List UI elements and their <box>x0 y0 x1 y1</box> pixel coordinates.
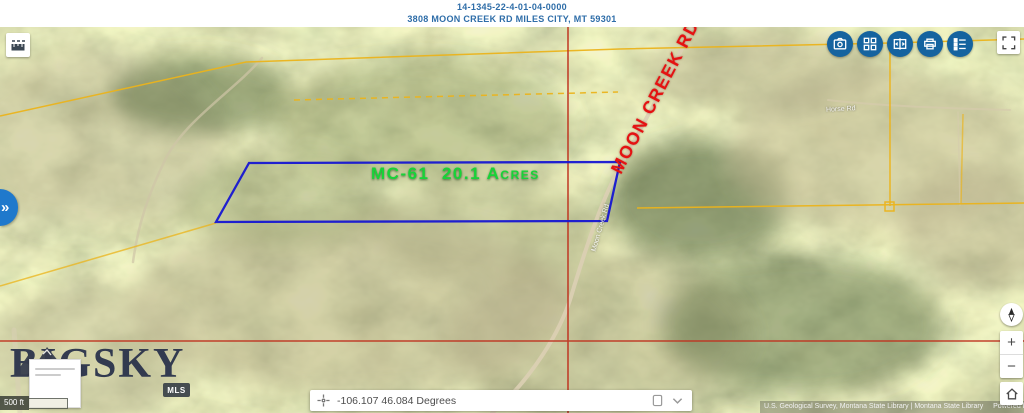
chevron-right-icon: » <box>1 199 7 216</box>
property-address: 3808 MOON CREEK RD MILES CITY, MT 59301 <box>407 14 616 25</box>
map-attribution: U.S. Geological Survey, Montana State Li… <box>760 401 1024 413</box>
measure-tool-button[interactable] <box>6 33 30 57</box>
parcel-number: 14-1345-22-4-01-04-0000 <box>457 2 567 13</box>
layers-grid-button[interactable] <box>857 31 883 57</box>
ruler-icon <box>7 34 29 56</box>
print-button[interactable] <box>917 31 943 57</box>
map-application: MC-61 20.1 Acres MOON CREEK RD Moon Cree… <box>0 0 1024 413</box>
print-icon <box>923 37 937 51</box>
scale-bar: 500 ft <box>0 396 68 410</box>
fullscreen-button[interactable] <box>997 31 1020 54</box>
legend-icon <box>953 37 967 51</box>
camera-icon <box>833 37 847 51</box>
fullscreen-expand-icon <box>1001 35 1016 50</box>
compass-button[interactable] <box>1000 303 1023 326</box>
chevron-down-icon[interactable] <box>672 397 683 405</box>
crosshair-icon[interactable] <box>317 394 330 407</box>
scale-bar-segment <box>29 398 68 409</box>
apps-grid-icon <box>863 37 877 51</box>
zoom-out-button[interactable]: − <box>1000 355 1023 378</box>
attribution-sources: U.S. Geological Survey, Montana State Li… <box>764 403 983 410</box>
copy-icon[interactable] <box>652 394 663 407</box>
zoom-in-button[interactable]: + <box>1000 331 1023 354</box>
scale-bar-label: 500 ft <box>0 396 29 410</box>
map-canvas[interactable]: MC-61 20.1 Acres MOON CREEK RD Moon Cree… <box>0 0 1024 413</box>
compass-needle-icon <box>1003 306 1020 323</box>
swipe-compare-button[interactable] <box>887 31 913 57</box>
header-bar: 14-1345-22-4-01-04-0000 3808 MOON CREEK … <box>0 0 1024 27</box>
mls-badge: MLS <box>163 383 190 397</box>
home-extent-button[interactable] <box>1000 382 1023 405</box>
coordinate-value: -106.107 46.084 Degrees <box>337 395 652 407</box>
zoom-controls: + − <box>1000 331 1023 378</box>
swipe-compare-icon <box>893 37 907 51</box>
legend-button[interactable] <box>947 31 973 57</box>
home-icon <box>1005 387 1019 401</box>
watermark-word-sky: SKY <box>93 344 185 384</box>
parcel-acreage-label: MC-61 20.1 Acres <box>371 164 540 184</box>
coordinate-widget[interactable]: -106.107 46.084 Degrees <box>310 390 692 411</box>
basemap-gallery-button[interactable] <box>827 31 853 57</box>
